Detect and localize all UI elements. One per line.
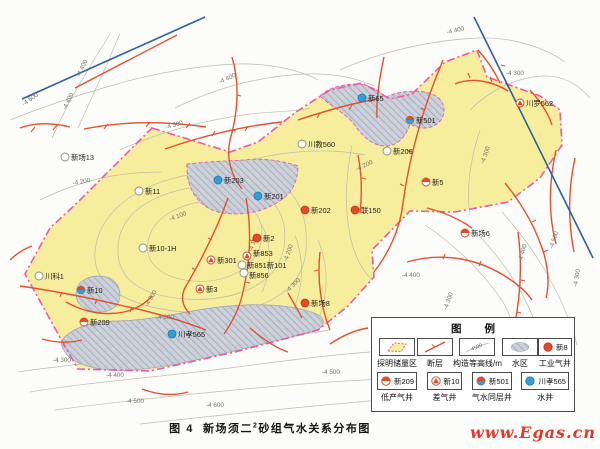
legend-item-label: 水区 bbox=[512, 358, 528, 369]
well-marker-9: 新202 bbox=[301, 206, 331, 215]
well-marker-24: 新场8 bbox=[301, 299, 330, 308]
well-marker-3: 新201 bbox=[254, 192, 284, 201]
legend-item-label: 探明储量区 bbox=[377, 358, 417, 369]
well-label: 新209 bbox=[90, 318, 110, 327]
legend-well-name: 新501 bbox=[489, 376, 509, 387]
contour-label-24: -4 500 bbox=[548, 230, 560, 250]
legend-symbol-waterarea-icon bbox=[502, 338, 538, 356]
contour-label-25: -4 300 bbox=[572, 268, 582, 287]
legend-symbol-reserve-icon bbox=[379, 338, 415, 356]
well-label: 川孝565 bbox=[178, 330, 205, 339]
well-label: 联150 bbox=[361, 206, 381, 215]
well-marker-4: 新65 bbox=[358, 94, 384, 103]
well-label: 新65 bbox=[368, 94, 384, 103]
caption-figure-number: 图 4 bbox=[169, 423, 194, 435]
well-marker-8: 新206 bbox=[383, 147, 413, 156]
well-marker-20: 川科1 bbox=[35, 272, 64, 281]
well-label: 新10-1H bbox=[149, 244, 177, 253]
well-label: 新场13 bbox=[71, 153, 94, 162]
watermark-text: www.Egas.cn bbox=[470, 423, 596, 442]
legend-symbol-fault-icon bbox=[417, 338, 453, 356]
well-marker-22: 新209 bbox=[80, 318, 110, 327]
svg-text:4500: 4500 bbox=[471, 342, 484, 352]
well-marker-11: 新5 bbox=[422, 178, 444, 187]
well-label: 新场6 bbox=[471, 229, 490, 238]
legend-item-label: 低产气井 bbox=[381, 392, 413, 403]
well-label: 新3 bbox=[206, 285, 218, 294]
boundary-line-northwest bbox=[22, 17, 205, 99]
legend-box: 图 例 探明储量区断层4500构造等高线/m水区新8工业气井 新209低产气井新… bbox=[371, 317, 575, 412]
legend-item-label: 水井 bbox=[537, 392, 553, 403]
legend-well-name: 新10 bbox=[444, 376, 460, 387]
caption-title-post: 砂组气水关系分布图 bbox=[258, 423, 371, 435]
well-marker-23: 川孝565 bbox=[168, 330, 205, 339]
well-label: 新501 bbox=[416, 116, 436, 125]
well-label: 新202 bbox=[311, 206, 331, 215]
legend-row-1: 探明储量区断层4500构造等高线/m水区新8工业气井 bbox=[377, 338, 569, 369]
legend-row-2: 新209低产气井新10差气井新501气水同层井川孝565水井 bbox=[377, 372, 569, 403]
well-marker-0: 新场13 bbox=[61, 153, 94, 162]
well-label: 川科1 bbox=[45, 272, 64, 281]
well-marker-2: 新203 bbox=[214, 176, 244, 185]
well-label: 川罗562 bbox=[526, 99, 553, 108]
legend-symbol-gaswater-icon: 新501 bbox=[472, 372, 512, 390]
well-marker-6: 川罗562 bbox=[516, 99, 553, 108]
legend-symbol-water-icon: 川孝565 bbox=[521, 372, 569, 390]
well-label: 新851新101 bbox=[247, 261, 286, 270]
legend-item-fault: 断层 bbox=[417, 338, 453, 369]
well-marker-12: 新场6 bbox=[461, 229, 490, 238]
legend-symbol-poor-icon: 新10 bbox=[427, 372, 463, 390]
legend-well-name: 新8 bbox=[556, 342, 568, 353]
legend-title: 图 例 bbox=[377, 321, 569, 336]
well-label: 新10 bbox=[87, 286, 103, 295]
well-label: 川教560 bbox=[308, 140, 335, 149]
contour-label-1: -4 400 bbox=[61, 91, 75, 111]
legend-item-label: 差气井 bbox=[432, 392, 456, 403]
well-label: 新201 bbox=[264, 192, 284, 201]
contour-label-15: -4 300 bbox=[53, 357, 71, 364]
contour-label-17: -4 400 bbox=[106, 372, 124, 379]
legend-item-low: 新209低产气井 bbox=[377, 372, 417, 403]
contour-label-7: -4 200 bbox=[72, 177, 91, 187]
contour-label-0: -4 500 bbox=[21, 91, 40, 107]
legend-symbol-industrial-icon: 新8 bbox=[538, 338, 572, 356]
legend-item-label: 工业气井 bbox=[539, 358, 571, 369]
legend-item-poor: 新10差气井 bbox=[427, 372, 463, 403]
well-label: 新856 bbox=[249, 271, 269, 280]
contour-label-2: -4 400 bbox=[75, 58, 89, 78]
contour-label-21: -4 400 bbox=[402, 272, 420, 279]
legend-symbol-contour-icon: 4500 bbox=[459, 338, 495, 356]
well-marker-7: 川教560 bbox=[298, 140, 335, 149]
contour-label-5: -4 400 bbox=[446, 25, 465, 36]
contour-label-19: -4 600 bbox=[206, 402, 224, 409]
contour-label-18: -4 500 bbox=[126, 398, 144, 405]
well-label: 新2 bbox=[263, 234, 275, 243]
legend-item-label: 断层 bbox=[427, 358, 443, 369]
legend-item-label: 构造等高线/m bbox=[453, 358, 502, 369]
legend-item-label: 气水同层井 bbox=[472, 392, 512, 403]
contour-label-6: -4 300 bbox=[506, 70, 524, 77]
legend-item-water: 川孝565水井 bbox=[521, 372, 569, 403]
legend-item-contour: 4500构造等高线/m bbox=[453, 338, 502, 369]
well-label: 新301 bbox=[217, 256, 237, 265]
contour-label-20: -4 500 bbox=[322, 369, 340, 376]
well-marker-18: 新3 bbox=[196, 285, 218, 294]
well-marker-21: 新10 bbox=[77, 286, 103, 295]
caption-title-pre: 新场须二 bbox=[203, 423, 253, 435]
well-marker-10: 联150 bbox=[351, 206, 381, 215]
well-label: 新206 bbox=[393, 147, 413, 156]
well-marker-14: 新301 bbox=[207, 256, 237, 265]
well-marker-5: 新501 bbox=[406, 116, 436, 125]
legend-well-name: 川孝565 bbox=[538, 376, 566, 387]
well-marker-1: 新11 bbox=[135, 187, 160, 196]
well-marker-13: 新2 bbox=[253, 234, 275, 243]
well-marker-19: 新10-1H bbox=[139, 244, 177, 253]
legend-item-reserve: 探明储量区 bbox=[377, 338, 417, 369]
well-label: 新场8 bbox=[311, 299, 330, 308]
legend-item-gaswater: 新501气水同层井 bbox=[472, 372, 512, 403]
contour-label-4: -4 400 bbox=[218, 72, 238, 86]
contour-label-22: -4 300 bbox=[442, 291, 455, 311]
legend-well-name: 新209 bbox=[394, 376, 414, 387]
legend-item-waterarea: 水区 bbox=[502, 338, 538, 369]
figure-caption: 图 4 新场须二2砂组气水关系分布图 bbox=[0, 420, 540, 436]
contour-label-3: -4 300 bbox=[165, 119, 185, 131]
well-label: 新11 bbox=[145, 187, 160, 196]
legend-item-industrial: 新8工业气井 bbox=[538, 338, 572, 369]
well-label: 新853 bbox=[253, 249, 273, 258]
legend-symbol-low-icon: 新209 bbox=[377, 372, 417, 390]
well-label: 新5 bbox=[432, 178, 444, 187]
contour-label-14: -4 200 bbox=[156, 314, 174, 321]
well-label: 新203 bbox=[224, 176, 244, 185]
